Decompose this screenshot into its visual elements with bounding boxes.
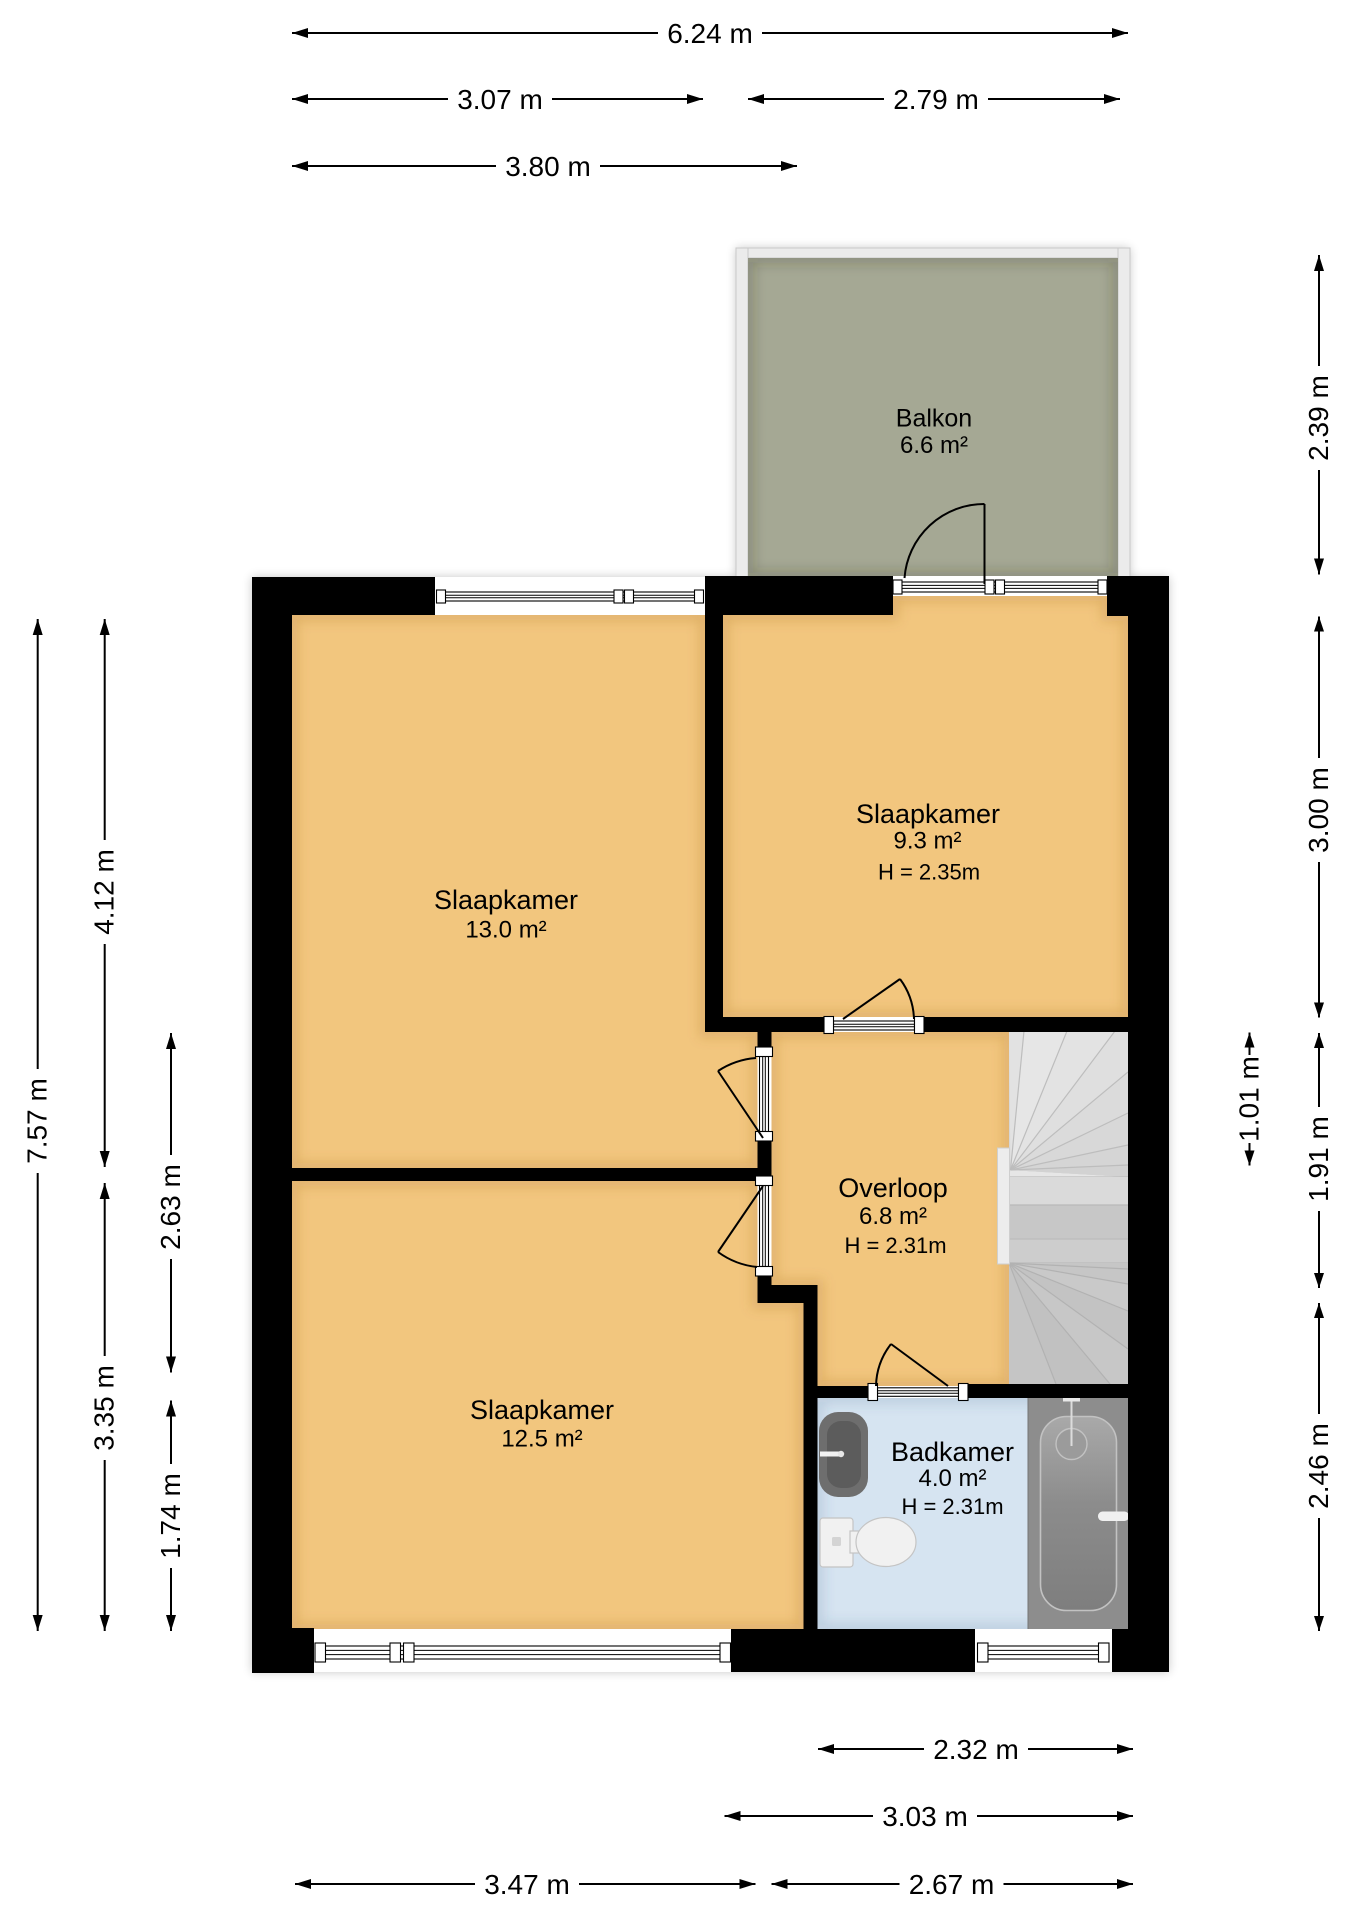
svg-text:3.07 m: 3.07 m [457,84,543,115]
svg-text:H = 2.31m: H = 2.31m [844,1233,946,1258]
svg-text:Overloop: Overloop [838,1173,948,1203]
svg-text:2.46 m: 2.46 m [1303,1423,1334,1509]
svg-text:6.6 m²: 6.6 m² [900,432,968,459]
svg-text:2.79 m: 2.79 m [893,84,979,115]
svg-text:Balkon: Balkon [896,405,972,433]
svg-text:4.12 m: 4.12 m [89,849,120,935]
svg-text:9.3 m²: 9.3 m² [893,828,961,855]
svg-text:H = 2.35m: H = 2.35m [878,860,980,885]
svg-text:2.67 m: 2.67 m [909,1869,995,1900]
svg-text:7.57 m: 7.57 m [22,1078,53,1164]
svg-text:Badkamer: Badkamer [891,1437,1014,1467]
svg-text:1.91 m: 1.91 m [1303,1116,1334,1202]
svg-text:6.8 m²: 6.8 m² [859,1203,927,1230]
svg-text:2.63 m: 2.63 m [155,1164,186,1250]
svg-text:1.74 m: 1.74 m [155,1473,186,1559]
svg-text:2.39 m: 2.39 m [1303,375,1334,461]
svg-text:Slaapkamer: Slaapkamer [470,1395,614,1425]
svg-text:3.47 m: 3.47 m [484,1869,570,1900]
svg-text:4.0 m²: 4.0 m² [918,1465,986,1492]
svg-text:6.24 m: 6.24 m [667,18,753,49]
svg-text:1.01 m: 1.01 m [1234,1056,1265,1142]
svg-text:3.35 m: 3.35 m [89,1365,120,1451]
svg-text:13.0 m²: 13.0 m² [465,917,546,944]
svg-text:Slaapkamer: Slaapkamer [856,799,1000,829]
svg-text:3.03 m: 3.03 m [882,1801,968,1832]
svg-text:12.5 m²: 12.5 m² [501,1426,582,1453]
svg-text:Slaapkamer: Slaapkamer [434,885,578,915]
svg-text:3.00 m: 3.00 m [1303,767,1334,853]
svg-text:H = 2.31m: H = 2.31m [901,1494,1003,1519]
svg-text:3.80 m: 3.80 m [505,151,591,182]
svg-text:2.32 m: 2.32 m [933,1734,1019,1765]
